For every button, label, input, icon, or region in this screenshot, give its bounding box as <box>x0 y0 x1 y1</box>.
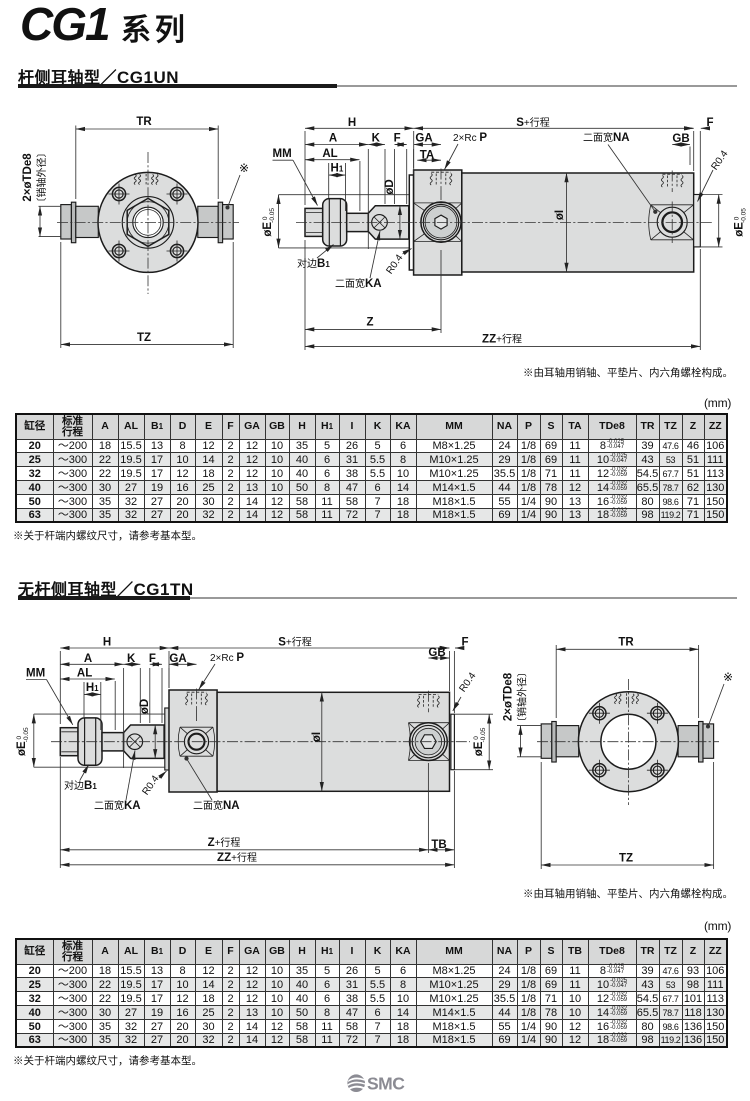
svg-text:H1: H1 <box>331 163 344 175</box>
svg-text:对边B1: 对边B1 <box>297 257 330 270</box>
svg-text:R0.4: R0.4 <box>140 773 161 797</box>
svg-text:A: A <box>329 133 337 145</box>
svg-text:TR: TR <box>618 636 634 648</box>
svg-text:〔销轴外径〕: 〔销轴外径〕 <box>35 148 48 208</box>
svg-text:2×øTDe8: 2×øTDe8 <box>503 672 515 721</box>
svg-text:AL: AL <box>322 148 337 160</box>
svg-text:R0.4: R0.4 <box>384 252 405 276</box>
svg-text:TB: TB <box>431 839 446 851</box>
svg-text:øE 0-0.05: øE 0-0.05 <box>473 727 487 756</box>
svg-text:GA: GA <box>169 653 186 665</box>
svg-text:Z: Z <box>366 316 373 328</box>
svg-text:SMC: SMC <box>367 1074 405 1094</box>
svg-text:TZ: TZ <box>619 852 633 864</box>
svg-text:MM: MM <box>273 148 292 160</box>
svg-text:H1: H1 <box>86 682 99 694</box>
svg-text:K: K <box>127 653 136 665</box>
svg-text:øE 0-0.05: øE 0-0.05 <box>262 208 276 237</box>
svg-text:A: A <box>84 653 92 665</box>
svg-text:R0.4: R0.4 <box>457 670 478 694</box>
svg-text:S+行程: S+行程 <box>516 116 550 129</box>
svg-text:øD: øD <box>139 699 151 714</box>
svg-text:S+行程: S+行程 <box>278 636 312 649</box>
svg-text:GB: GB <box>428 647 445 659</box>
svg-text:GA: GA <box>415 133 432 145</box>
svg-text:ZZ+行程: ZZ+行程 <box>217 851 257 864</box>
svg-text:øI: øI <box>554 210 566 220</box>
svg-text:二面宽NA: 二面宽NA <box>193 799 240 812</box>
svg-text:GB: GB <box>672 133 689 145</box>
svg-text:※: ※ <box>239 161 249 175</box>
svg-text:F: F <box>461 637 468 649</box>
svg-text:øE 0-0.05: øE 0-0.05 <box>16 727 30 756</box>
svg-text:※: ※ <box>723 670 733 684</box>
svg-text:F: F <box>149 653 156 665</box>
svg-text:2×Rc P: 2×Rc P <box>453 132 487 144</box>
svg-text:øI: øI <box>311 732 323 742</box>
svg-text:F: F <box>706 117 713 129</box>
svg-text:二面宽NA: 二面宽NA <box>583 131 630 144</box>
svg-text:2×øTDe8: 2×øTDe8 <box>22 153 34 202</box>
svg-text:〔销轴外径〕: 〔销轴外径〕 <box>516 667 529 727</box>
svg-text:øE 0-0.05: øE 0-0.05 <box>734 208 748 237</box>
svg-text:H: H <box>348 117 356 129</box>
svg-text:TR: TR <box>136 116 152 128</box>
svg-text:AL: AL <box>77 668 92 680</box>
svg-text:F: F <box>394 133 401 145</box>
svg-text:TA: TA <box>420 149 434 161</box>
svg-text:对边B1: 对边B1 <box>64 779 97 792</box>
svg-text:二面宽KA: 二面宽KA <box>94 799 141 812</box>
svg-text:R0.4: R0.4 <box>709 148 730 172</box>
svg-text:øD: øD <box>384 179 396 194</box>
svg-text:H: H <box>103 637 111 649</box>
svg-text:K: K <box>372 133 381 145</box>
svg-text:2×Rc P: 2×Rc P <box>210 652 244 664</box>
svg-text:TZ: TZ <box>137 332 151 344</box>
svg-text:二面宽KA: 二面宽KA <box>335 277 382 290</box>
svg-text:MM: MM <box>26 667 45 679</box>
svg-text:ZZ+行程: ZZ+行程 <box>482 332 522 345</box>
svg-text:Z+行程: Z+行程 <box>208 836 241 849</box>
